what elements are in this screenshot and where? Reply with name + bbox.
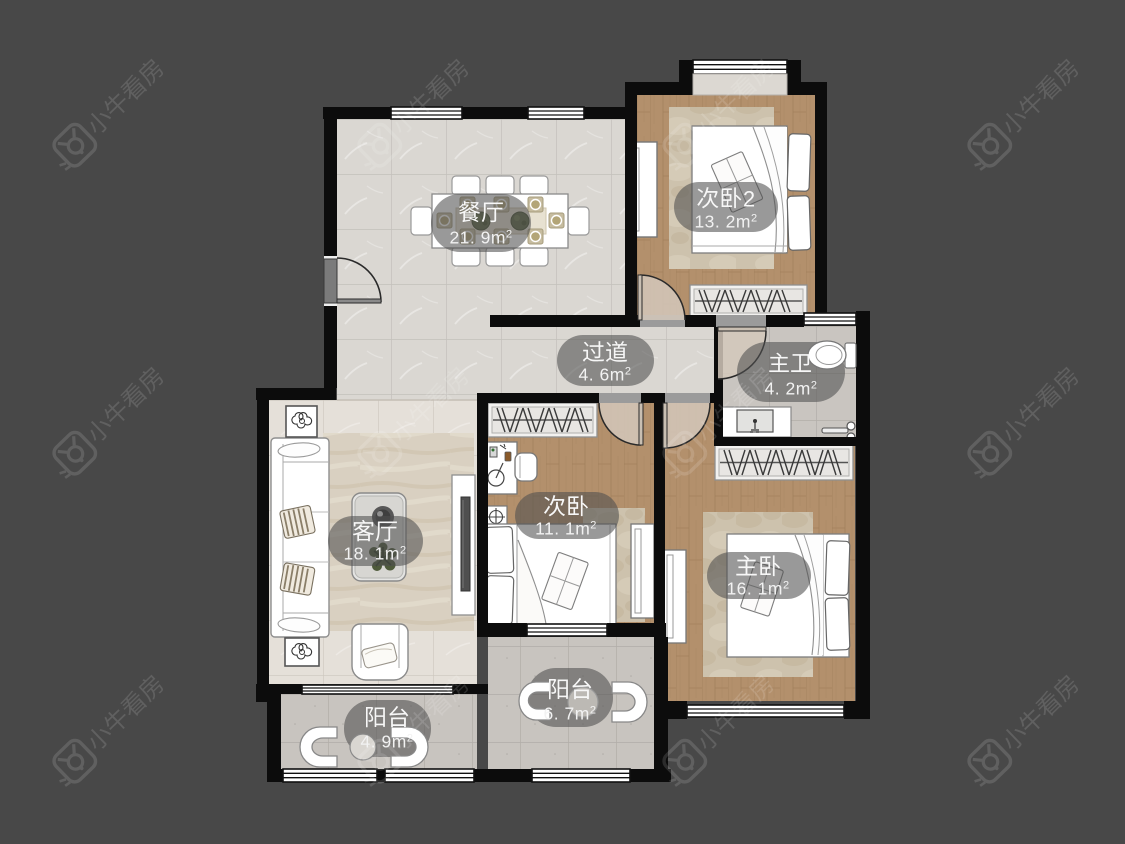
svg-text:13. 2m2: 13. 2m2 [694, 211, 757, 231]
svg-text:2: 2 [743, 186, 755, 211]
svg-text:11. 1m2: 11. 1m2 [535, 518, 597, 538]
svg-text:21. 9m2: 21. 9m2 [449, 227, 512, 247]
svg-text:18. 1m2: 18. 1m2 [343, 543, 406, 563]
svg-text:16. 1m2: 16. 1m2 [726, 578, 789, 598]
svg-text:4. 6m2: 4. 6m2 [579, 364, 632, 384]
svg-text:6. 7m2: 6. 7m2 [544, 703, 597, 723]
